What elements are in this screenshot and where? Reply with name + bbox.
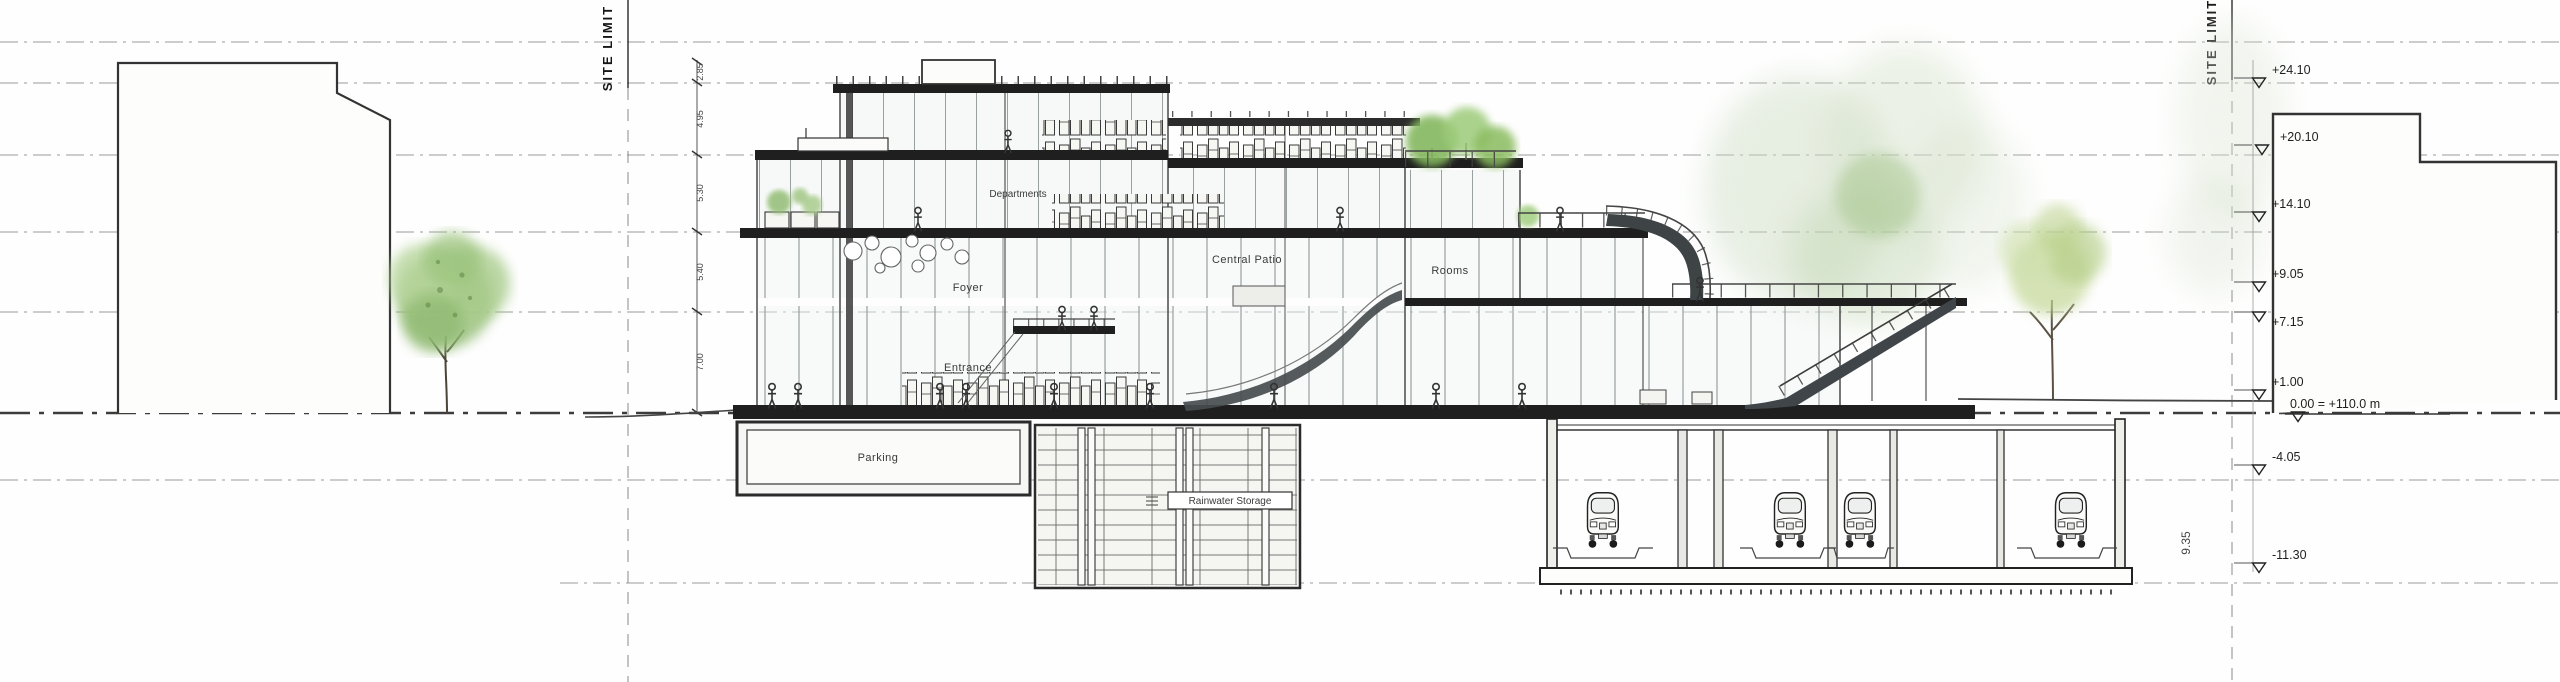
rail-tunnel: 9.35: [1540, 419, 2193, 592]
svg-text:+14.10: +14.10: [2272, 197, 2311, 211]
terrain-line-right: [1958, 399, 2273, 401]
svg-text:+24.10: +24.10: [2272, 63, 2311, 77]
rainwater-storage-label: Rainwater Storage: [1189, 496, 1272, 507]
left-building: [118, 63, 390, 413]
level-triangle-icon: [2253, 390, 2266, 400]
entrance-label: Entrance: [944, 362, 992, 374]
svg-text:+20.10: +20.10: [2280, 130, 2319, 144]
section-drawing: SITE LIMIT SITE LIMIT 2.85 4.95 5.30 5.4…: [0, 0, 2560, 682]
right-tree: [2000, 204, 2106, 400]
svg-text:+1.00: +1.00: [2272, 375, 2304, 389]
background-foliage: [1705, 20, 2287, 325]
svg-text:-4.05: -4.05: [2272, 450, 2301, 464]
floor-height-dim: 2.85: [695, 63, 705, 81]
right-building: [2273, 114, 2556, 413]
underground: Parking Rainwater Storage: [737, 419, 2193, 592]
tunnel-base-slab: [1540, 568, 2132, 584]
central-patio-label: Central Patio: [1212, 254, 1282, 266]
svg-text:+7.15: +7.15: [2272, 315, 2304, 329]
architectural-section-sheet: SITE LIMIT SITE LIMIT 2.85 4.95 5.30 5.4…: [0, 0, 2560, 682]
level-triangle-icon: [2253, 465, 2266, 475]
rooftop-box: [922, 60, 995, 84]
departments-label: Departments: [989, 189, 1046, 200]
level-triangle-icon: [2253, 282, 2266, 292]
tunnel-depth-dim: 9.35: [2179, 531, 2193, 555]
parking-label: Parking: [858, 452, 899, 464]
svg-text:-11.30: -11.30: [2272, 548, 2307, 562]
site-limit-left-label: SITE LIMIT: [600, 5, 615, 91]
dimension-line-left: 2.85 4.95 5.30 5.40 7.00: [692, 58, 705, 416]
elevation-marker: -4.05: [2234, 450, 2301, 475]
svg-text:+9.05: +9.05: [2272, 267, 2304, 281]
svg-text:0.00 = +110.0 m: 0.00 = +110.0 m: [2290, 397, 2380, 411]
floor-height-dim: 7.00: [695, 353, 705, 371]
foyer-label: Foyer: [953, 282, 984, 294]
level-triangle-icon: [2253, 563, 2266, 573]
rooms-label: Rooms: [1431, 265, 1468, 277]
left-tree: [389, 232, 510, 413]
level-triangle-icon: [2253, 312, 2266, 322]
elevation-marker: +7.15: [2234, 312, 2304, 329]
floor-height-dim: 5.30: [695, 184, 705, 202]
site-limit-left: SITE LIMIT: [600, 0, 628, 682]
floor-height-dim: 5.40: [695, 263, 705, 281]
parking-box: Parking: [737, 422, 1030, 495]
floor-height-dim: 4.95: [695, 110, 705, 128]
elevation-marker: -11.30: [2234, 548, 2307, 573]
rainwater-storage-structure: Rainwater Storage: [1035, 425, 1300, 588]
